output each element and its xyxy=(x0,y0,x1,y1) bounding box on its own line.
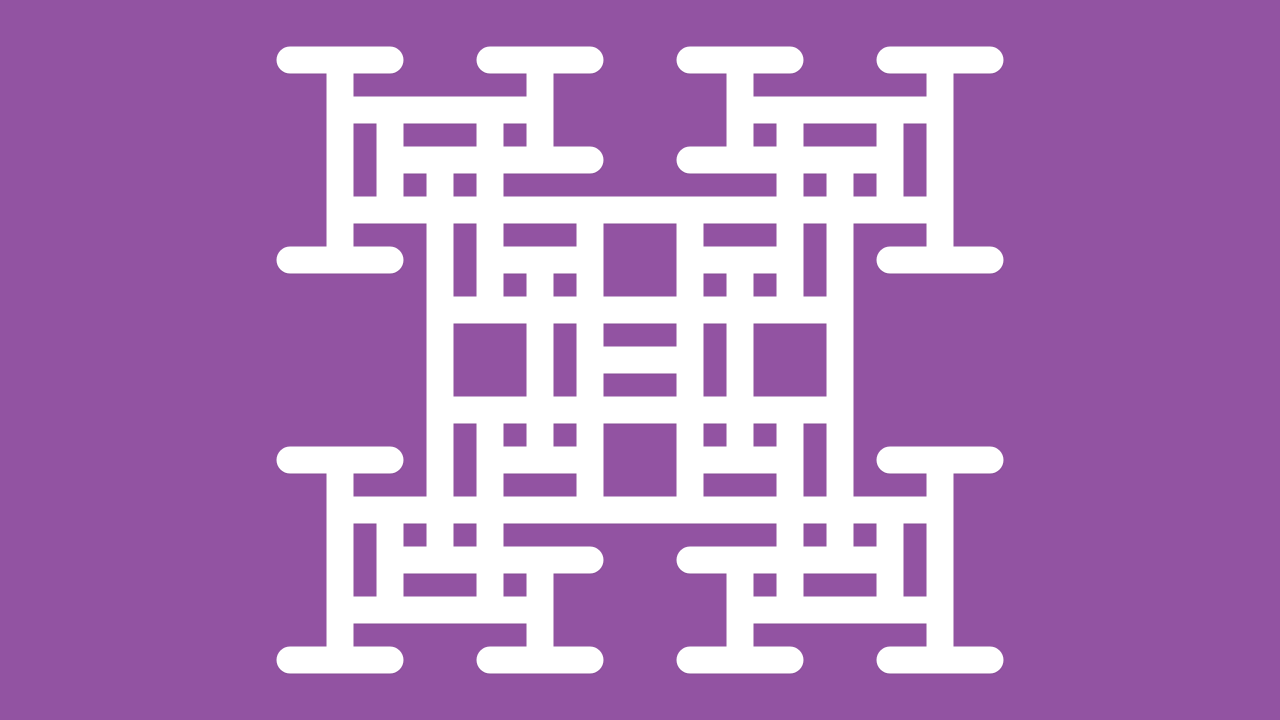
h-tree-fractal-figure xyxy=(0,0,1280,720)
fractal-canvas xyxy=(0,0,1280,720)
